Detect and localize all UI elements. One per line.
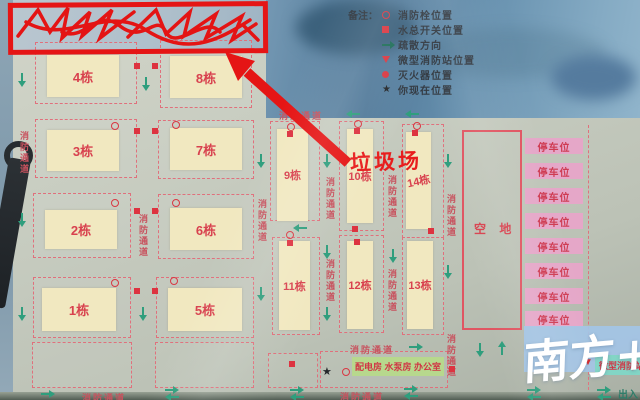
- parking-label: 停车位: [538, 164, 571, 179]
- fire-lane-label: 消防通道: [256, 199, 269, 243]
- building-label: 13栋: [408, 277, 431, 293]
- map-legend: 备注： 消防栓位置 水总开关位置 疏散方向 微型消防站位置 灭火器位置 ★: [348, 7, 518, 97]
- building-4: 4栋: [47, 55, 119, 97]
- parking-space: 停车位: [525, 138, 583, 154]
- evacuation-arrow-icon: [408, 341, 424, 353]
- parking-label: 停车位: [538, 214, 571, 229]
- building-3: 3栋: [47, 130, 119, 171]
- building-2: 2栋: [45, 210, 117, 249]
- hydrant-icon: [342, 368, 350, 376]
- water-switch-icon: [152, 288, 158, 294]
- evacuation-arrow-icon: [321, 306, 333, 322]
- legend-row: 水总开关位置: [348, 22, 518, 37]
- fire-lane-label: 消防通道: [324, 177, 337, 221]
- legend-row: 微型消防站位置: [348, 52, 518, 67]
- nanfang-plus-watermark: 南方+: [522, 316, 640, 400]
- empty-lot-label: 空 地: [474, 220, 516, 237]
- fire-lane-label: 消防通道: [350, 343, 394, 356]
- legend-label: 灭火器位置: [398, 67, 453, 82]
- parking-space: 停车位: [525, 263, 583, 279]
- fire-lane-label: 消防通道: [386, 175, 399, 219]
- building-label: 4栋: [73, 67, 93, 86]
- parking-space: 停车位: [525, 288, 583, 304]
- legend-label: 你现在位置: [398, 82, 453, 97]
- water-switch-icon: [134, 128, 140, 134]
- evacuation-arrow-icon: [321, 244, 333, 260]
- facility-box: 配电房 水泵房 办公室: [352, 357, 444, 376]
- fire-lane-label: 消防通道: [324, 259, 337, 303]
- evacuation-arrow-icon: [387, 248, 399, 264]
- legend-row: 疏散方向: [348, 37, 518, 52]
- empty-plot-outline: [155, 342, 254, 388]
- evacuation-arrow-icon: [404, 108, 420, 120]
- you-are-here-icon: ★: [322, 367, 332, 378]
- parking-label: 停车位: [538, 289, 571, 304]
- fire-lane-label: 消防通道: [386, 269, 399, 313]
- water-switch-icon: [352, 226, 358, 232]
- building-1: 1栋: [42, 288, 116, 331]
- legend-label: 疏散方向: [398, 37, 442, 52]
- building-label: 12栋: [348, 277, 371, 293]
- strap-reflection: [0, 157, 31, 309]
- evacuation-arrow-icon: [16, 212, 28, 228]
- evacuation-arrow-icon: [474, 342, 486, 358]
- evacuation-arrow-icon: [16, 306, 28, 322]
- fire-evacuation-map-photo: 4栋 3栋 2栋 1栋 8栋 7栋 6栋 5栋 9栋 10栋 14栋 11栋 1…: [0, 0, 640, 400]
- empty-plot-outline: [32, 342, 132, 388]
- hydrant-icon: [111, 279, 119, 287]
- water-switch-icon: [428, 228, 434, 234]
- mini-fire-station-icon: [382, 56, 398, 63]
- legend-row: ★ 你现在位置: [348, 82, 518, 97]
- fire-lane-label: 消防通道: [445, 194, 458, 238]
- garbage-site-arrow: [205, 42, 355, 172]
- fire-lane-label: 消防通道: [340, 390, 384, 400]
- parking-label: 停车位: [538, 139, 571, 154]
- building-label: 2栋: [71, 220, 91, 239]
- evacuation-arrow-icon: [16, 72, 28, 88]
- empty-lot: 空 地: [462, 130, 522, 330]
- facility-label: 配电房 水泵房 办公室: [355, 360, 441, 373]
- parking-space: 停车位: [525, 188, 583, 204]
- parking-space: 停车位: [525, 163, 583, 179]
- hydrant-icon: [170, 277, 178, 285]
- parking-label: 停车位: [538, 239, 571, 254]
- water-switch-icon: [134, 63, 140, 69]
- fire-lane-label: 消防通道: [82, 391, 126, 400]
- legend-label: 水总开关位置: [398, 22, 464, 37]
- parking-label: 停车位: [538, 189, 571, 204]
- extinguisher-icon: [382, 71, 398, 78]
- hydrant-icon: [111, 122, 119, 130]
- evacuation-arrow-icon: [140, 76, 152, 92]
- hydrant-icon: [111, 199, 119, 207]
- water-switch-icon: [449, 366, 455, 372]
- hydrant-icon: [172, 199, 180, 207]
- utility-plot-outline: [268, 353, 318, 388]
- water-switch-icon: [152, 63, 158, 69]
- legend-label: 微型消防站位置: [398, 52, 475, 67]
- evacuation-arrow-icon: [382, 41, 398, 49]
- building-5: 5栋: [168, 288, 242, 331]
- water-switch-icon: [412, 130, 418, 136]
- evacuation-arrow-icon: [496, 340, 508, 356]
- building-13: 13栋: [407, 241, 433, 329]
- parking-space: 停车位: [525, 238, 583, 254]
- legend-row: 灭火器位置: [348, 67, 518, 82]
- hydrant-icon: [172, 121, 180, 129]
- evacuation-arrow-icon: [137, 306, 149, 322]
- evacuation-arrow-icon: [403, 390, 419, 400]
- legend-label: 消防栓位置: [398, 7, 453, 22]
- water-switch-icon: [382, 26, 398, 33]
- building-label: 1栋: [69, 300, 89, 319]
- hydrant-icon: [382, 11, 398, 19]
- evacuation-arrow-icon: [292, 222, 308, 234]
- parking-label: 停车位: [538, 264, 571, 279]
- building-12: 12栋: [347, 241, 373, 329]
- water-switch-icon: [354, 239, 360, 245]
- evacuation-arrow-icon: [289, 391, 305, 400]
- hydrant-icon: [354, 120, 362, 128]
- hydrant-icon: [413, 122, 421, 130]
- building-6: 6栋: [170, 208, 242, 250]
- water-switch-icon: [152, 208, 158, 214]
- evacuation-arrow-icon: [442, 264, 454, 280]
- water-switch-icon: [134, 208, 140, 214]
- building-11: 11栋: [279, 241, 310, 330]
- reflection-blob: [551, 55, 636, 100]
- fire-lane-label: 消防通道: [137, 214, 150, 258]
- evacuation-arrow-icon: [255, 286, 267, 302]
- evacuation-arrow-icon: [164, 391, 180, 400]
- evacuation-arrow-icon: [442, 153, 454, 169]
- legend-row: 备注： 消防栓位置: [348, 7, 518, 22]
- water-switch-icon: [289, 361, 295, 367]
- water-switch-icon: [287, 240, 293, 246]
- garbage-site-annotation: 垃圾场: [349, 145, 422, 177]
- evacuation-arrow-icon: [40, 388, 56, 400]
- building-label: 6栋: [196, 220, 216, 239]
- building-label: 5栋: [195, 300, 215, 319]
- water-switch-icon: [152, 128, 158, 134]
- legend-prefix: 备注：: [348, 7, 382, 22]
- you-are-here-icon: ★: [382, 85, 398, 95]
- water-switch-icon: [134, 288, 140, 294]
- fire-lane-label: 消防通道: [18, 131, 31, 175]
- building-label: 3栋: [73, 141, 93, 160]
- parking-space: 停车位: [525, 213, 583, 229]
- building-label: 11栋: [283, 278, 306, 294]
